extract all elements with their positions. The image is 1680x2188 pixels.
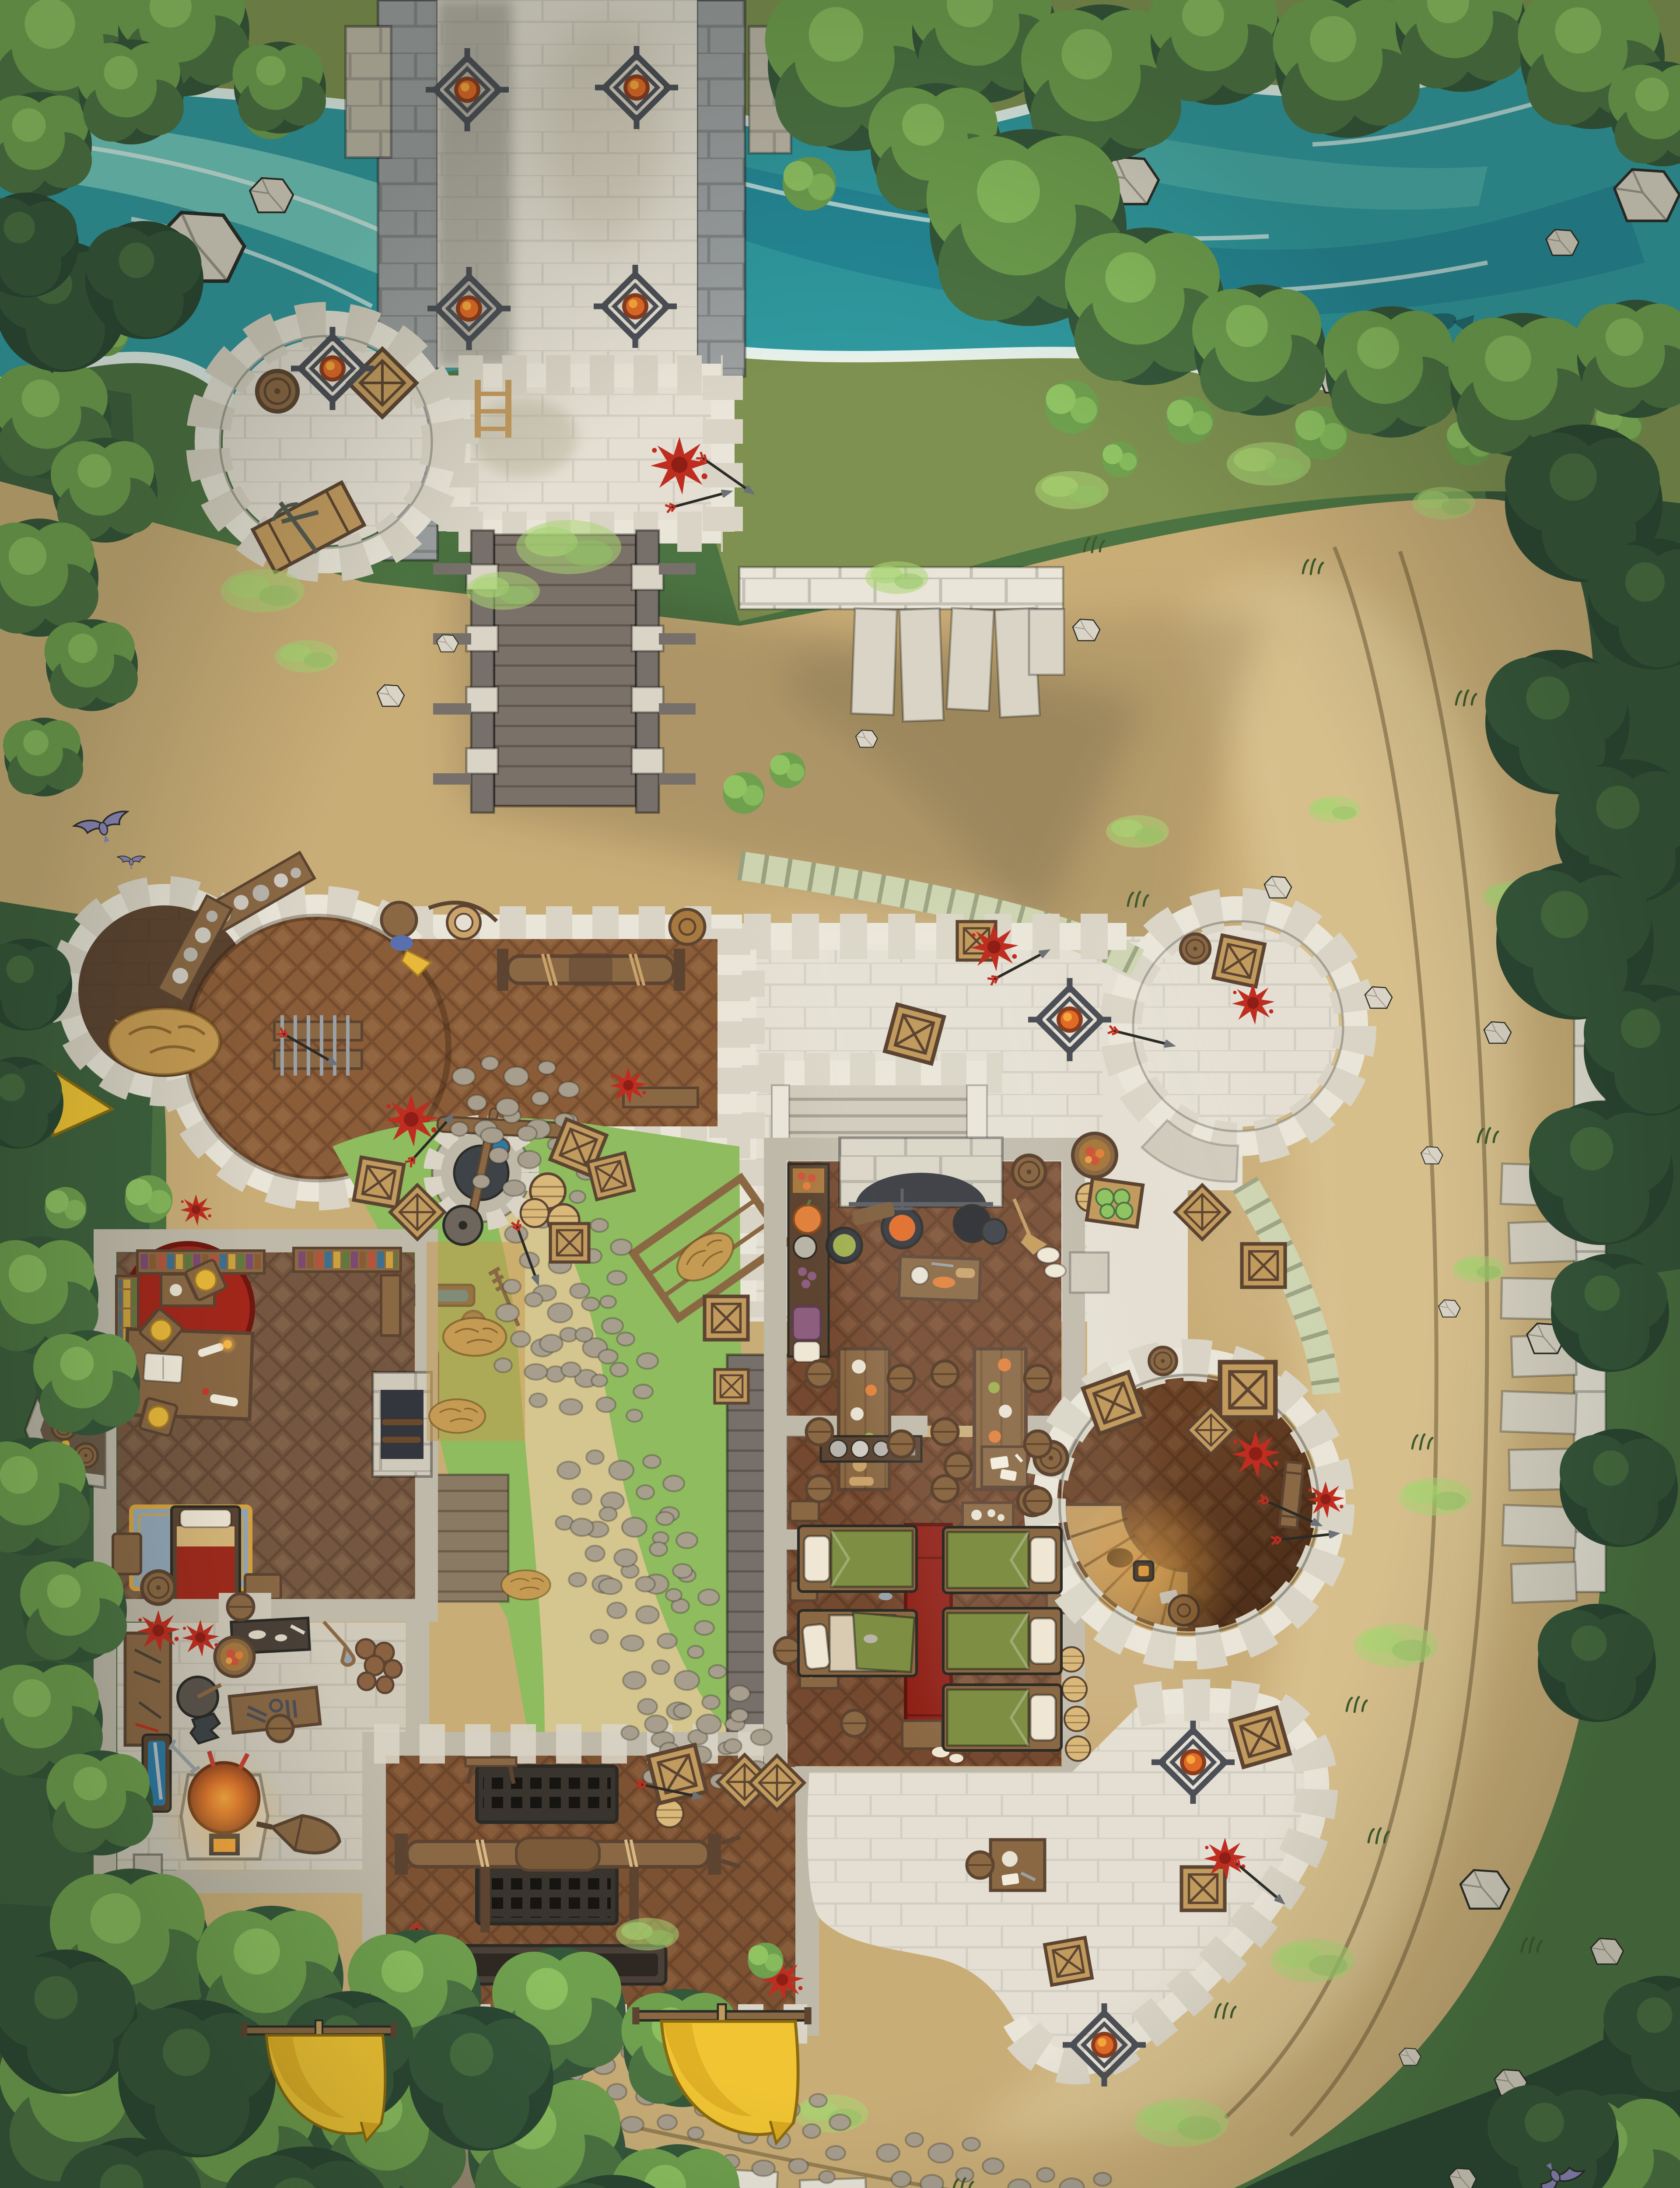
battle-map [0,0,1680,2188]
battle-map-stage [0,0,1680,2188]
vignette [0,0,1680,2188]
